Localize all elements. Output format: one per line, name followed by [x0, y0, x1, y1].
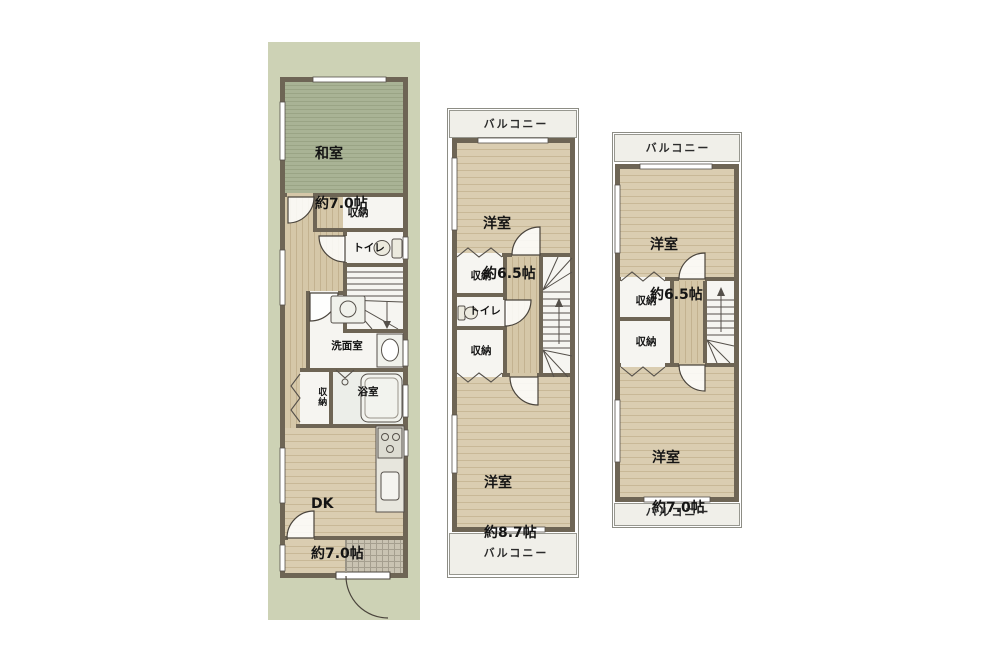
floor3-closet-b-label: 収納 [636, 336, 657, 348]
floor2-stairs-area [543, 257, 570, 373]
floor3-closet-a-label: 収納 [636, 295, 657, 307]
floor2-bedroom-top-label: 洋室 約6.5帖 [483, 183, 536, 315]
floor1-dk-label: DK 約7.0帖 [311, 463, 364, 595]
floor1-washroom-label: 洗面室 [331, 340, 363, 352]
floor3-bedroom-top-label: 洋室 約6.5帖 [650, 204, 703, 336]
floor1-washroom-room [310, 295, 403, 368]
floor2-toilet-label: トイレ [469, 305, 501, 317]
floor2-closet-b-label: 収納 [471, 345, 492, 357]
floor1-closet-top-label: 収納 [348, 207, 369, 219]
floor1-closet-small-label: 収納 [316, 387, 327, 407]
floor-plan-canvas: 和室 約7.0帖 収納 トイレ 洗面室 収納 浴室 DK 約7.0帖 バルコニー… [0, 0, 1000, 667]
floor1-bath-label: 浴室 [358, 386, 379, 398]
floor3-balcony-bottom-label: バルコニー [646, 507, 711, 520]
floor2-balcony-bottom-label: バルコニー [484, 548, 549, 561]
floor2-balcony-top-label: バルコニー [484, 119, 549, 132]
floor1-washitsu-label: 和室 約7.0帖 [315, 113, 368, 245]
floor3-balcony-top-label: バルコニー [646, 143, 711, 156]
floor3-bedroom-bottom-label: 洋室 約7.0帖 [652, 417, 705, 549]
floor1-toilet-label: トイレ [353, 242, 385, 254]
floor3-stairs-area [707, 281, 734, 363]
floor2-closet-a-label: 収納 [471, 270, 492, 282]
